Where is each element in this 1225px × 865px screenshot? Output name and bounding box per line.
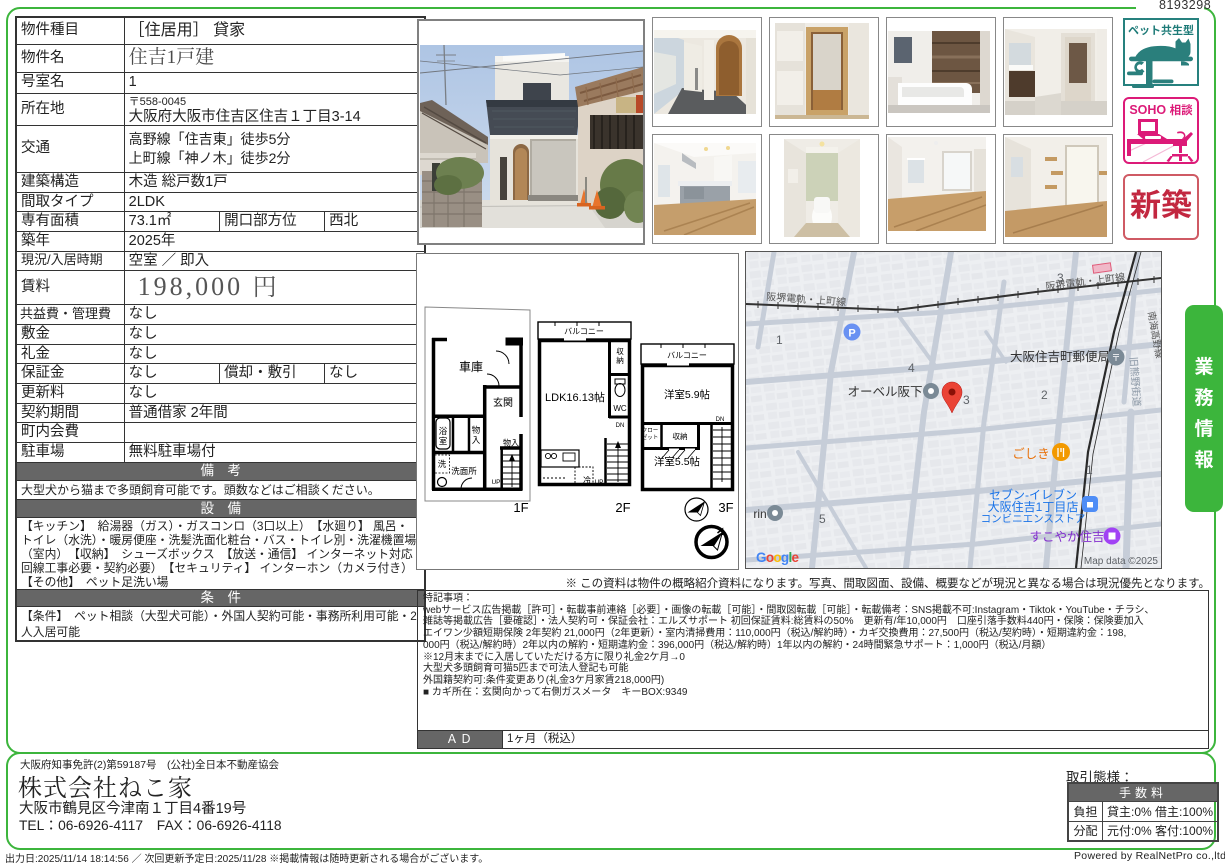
svg-text:物入: 物入 [503,438,519,448]
svg-text:LDK16.13帖: LDK16.13帖 [545,391,605,404]
svg-text:浴: 浴 [439,426,448,436]
svg-text:1: 1 [1086,463,1093,477]
svg-text:バルコニー: バルコニー [564,327,604,336]
svg-text:UP: UP [491,479,500,486]
svg-text:4: 4 [908,361,915,375]
svg-text:大阪住吉1丁目店: 大阪住吉1丁目店 [988,500,1079,514]
svg-text:Google: Google [756,550,800,565]
svg-text:UP: UP [594,479,603,486]
svg-text:ゼット: ゼット [642,433,659,441]
svg-text:大阪住吉町郵便局: 大阪住吉町郵便局 [1010,350,1110,364]
svg-text:3F: 3F [718,500,733,515]
svg-text:コンビニエンスストア: コンビニエンスストア [981,513,1086,525]
svg-text:玄関: 玄関 [493,396,513,409]
svg-text:DN: DN [716,417,725,423]
svg-text:洗面所: 洗面所 [451,466,477,476]
svg-text:オーベル阪下: オーベル阪下 [847,385,922,399]
svg-text:冷: 冷 [583,475,591,485]
svg-text:入: 入 [472,435,481,445]
svg-text:〒: 〒 [1111,353,1120,363]
svg-text:納: 納 [616,355,624,365]
svg-text:5: 5 [819,512,826,526]
svg-text:rin: rin [753,507,766,521]
svg-text:WC: WC [613,404,627,413]
svg-text:3: 3 [1057,271,1064,285]
svg-text:車庫: 車庫 [459,360,483,374]
svg-text:1: 1 [776,333,783,347]
svg-text:収納: 収納 [673,431,688,441]
svg-text:クロー: クロー [642,427,659,434]
svg-text:バルコニー: バルコニー [667,351,707,360]
svg-text:3: 3 [963,393,970,407]
svg-text:洋室5.9帖: 洋室5.9帖 [664,388,711,401]
svg-text:物: 物 [472,425,481,435]
svg-text:洋室5.5帖: 洋室5.5帖 [654,455,701,468]
svg-text:1F: 1F [513,500,528,515]
svg-text:ごしき: ごしき [1012,446,1050,461]
svg-text:2F: 2F [615,500,630,515]
svg-text:収: 収 [616,347,624,356]
svg-text:P: P [848,328,855,340]
svg-text:DN: DN [616,423,625,429]
svg-text:2: 2 [1041,388,1048,402]
svg-text:すこやか住吉: すこやか住吉 [1029,530,1104,544]
svg-text:室: 室 [439,436,448,446]
svg-text:洗: 洗 [438,459,447,469]
svg-text:Map data ©2025: Map data ©2025 [1084,556,1159,567]
